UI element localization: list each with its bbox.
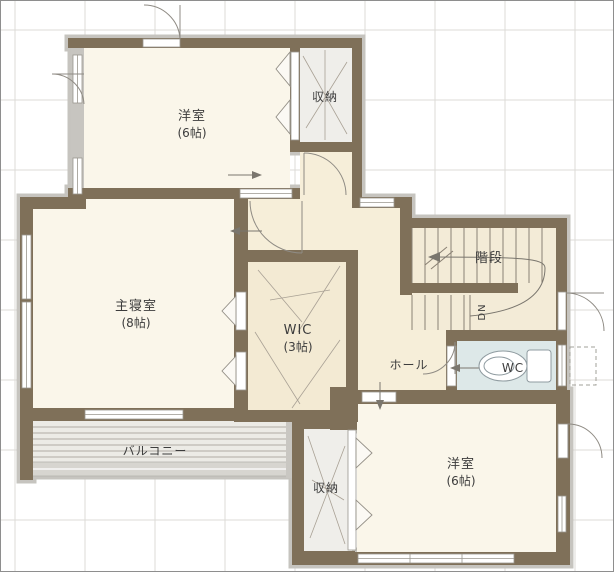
wc-window-eave: [570, 347, 596, 385]
label-wic: WIC: [284, 323, 313, 338]
label-bedroom-bottom-size: (6帖): [447, 473, 476, 488]
label-closet-top: 収納: [312, 90, 338, 104]
label-wic-size: (3帖): [284, 339, 313, 354]
floor-plan-page: 洋室 (6帖) 収納 主寝室 (8帖) WIC (3帖) 階段 DN ホール W…: [0, 0, 614, 572]
floor-plan: 洋室 (6帖) 収納 主寝室 (8帖) WIC (3帖) 階段 DN ホール W…: [0, 0, 614, 572]
label-master-bedroom-size: (8帖): [122, 315, 151, 330]
label-hall: ホール: [389, 358, 428, 372]
label-master-bedroom: 主寝室: [115, 298, 157, 314]
label-wc: WC: [502, 361, 524, 375]
label-stairs-direction: DN: [477, 303, 488, 320]
label-stairs: 階段: [475, 251, 503, 266]
label-bedroom-top-size: (6帖): [178, 125, 207, 140]
label-bedroom-bottom: 洋室: [447, 456, 475, 472]
label-closet-bottom: 収納: [313, 481, 339, 495]
label-balcony: バルコニー: [123, 444, 188, 458]
label-bedroom-top: 洋室: [178, 108, 206, 124]
